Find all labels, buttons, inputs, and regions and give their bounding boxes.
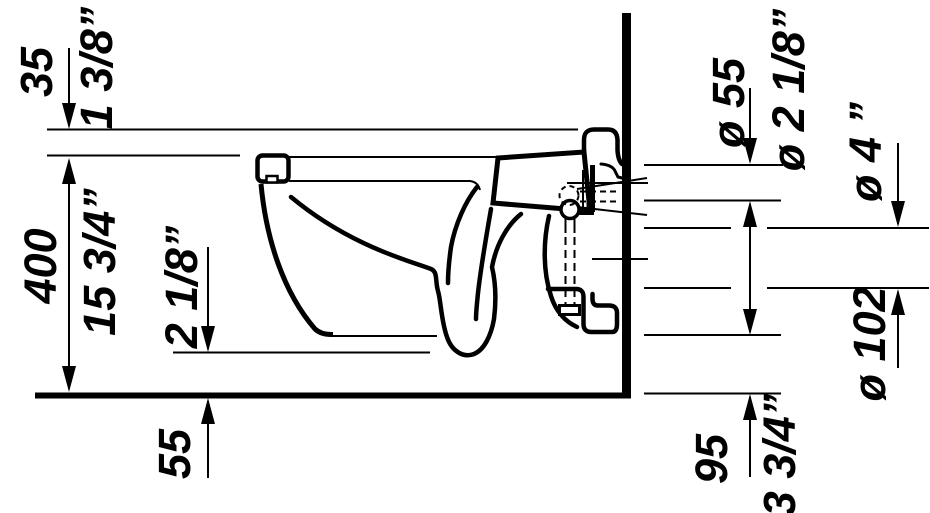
label-trap-clearance-imperial: 2 1/8” bbox=[156, 225, 207, 349]
rim-top-line bbox=[289, 181, 480, 190]
seat-buffer-notch bbox=[267, 176, 278, 183]
hinge-cap-curl bbox=[601, 164, 622, 178]
dim-rim-height-arrow-down bbox=[62, 366, 76, 392]
label-seat-height-metric: 35 bbox=[11, 46, 62, 97]
label-outlet-height-imperial: 3 3/4” bbox=[754, 393, 805, 513]
label-rim-height-metric: 400 bbox=[15, 228, 66, 304]
bowl-inner-back bbox=[448, 187, 477, 283]
label-inlet-dia-metric: ø 55 bbox=[703, 57, 754, 148]
label-outlet-dia-metric: ø 102 bbox=[844, 286, 895, 401]
bowl-inner-and-trap bbox=[291, 197, 521, 355]
technical-drawing-canvas: 35 1 3/8” 400 15 3/4” 2 1/8” 55 ø 55 ø 2… bbox=[0, 0, 930, 513]
label-outlet-dia-imperial: ø 4 ” bbox=[840, 101, 891, 202]
label-trap-clearance-metric: 55 bbox=[149, 428, 200, 479]
dim-outlet-height-arrow-down bbox=[743, 309, 757, 335]
flush-pipe-end-cap bbox=[560, 306, 580, 315]
toilet-profile bbox=[258, 156, 618, 356]
label-outlet-height-metric: 95 bbox=[686, 433, 737, 484]
trap-partition bbox=[476, 209, 491, 319]
dimension-labels: 35 1 3/8” 400 15 3/4” 2 1/8” 55 ø 55 ø 2… bbox=[11, 6, 895, 513]
label-rim-height-imperial: 15 3/4” bbox=[74, 188, 125, 336]
label-seat-height-imperial: 1 3/8” bbox=[71, 6, 122, 129]
bowl-front-contour bbox=[261, 184, 333, 335]
cistern-block bbox=[493, 130, 622, 212]
label-inlet-dia-imperial: ø 2 1/8” bbox=[763, 8, 814, 171]
hinge-cap bbox=[584, 130, 622, 165]
dim-outlet-dia-arrow-down bbox=[891, 201, 905, 227]
toilet-elevation-svg: 35 1 3/8” 400 15 3/4” 2 1/8” 55 ø 55 ø 2… bbox=[0, 0, 930, 513]
